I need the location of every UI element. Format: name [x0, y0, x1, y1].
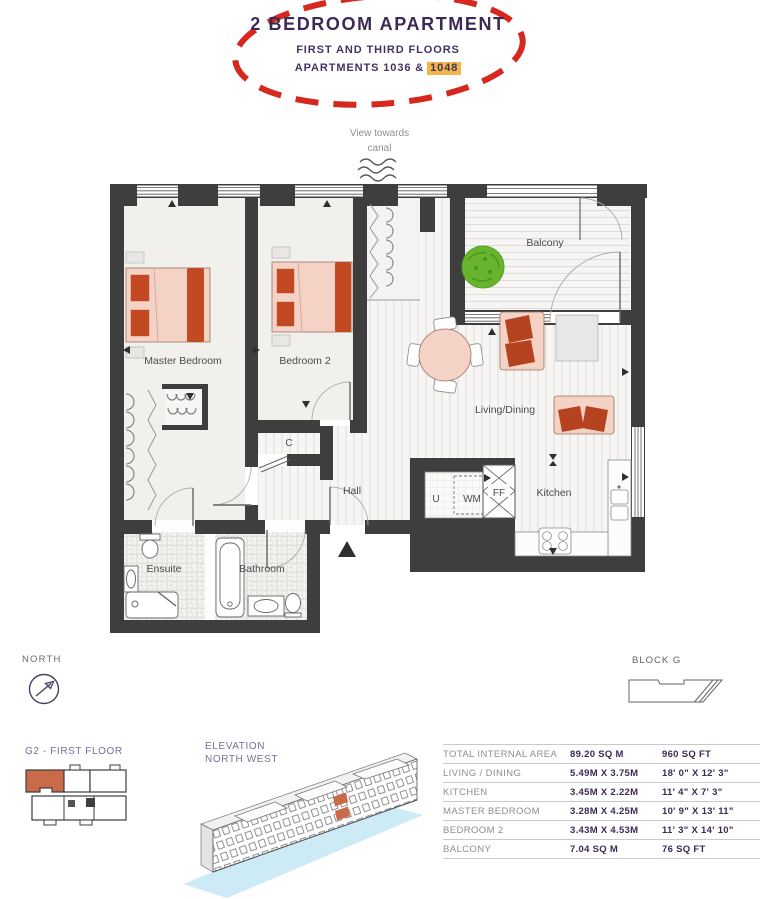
view-note-line2: canal [317, 141, 442, 156]
kitchen-sink [611, 485, 628, 520]
washing-machine-label: WM [463, 494, 481, 505]
bathroom-label: Bathroom [239, 563, 285, 575]
kitchen-label: Kitchen [536, 487, 571, 499]
block-g-label: BLOCK G [632, 655, 681, 666]
key-plan-diagram [24, 762, 136, 836]
row-imperial: 18' 0" X 12' 3" [662, 768, 760, 779]
table-row: BEDROOM 2 3.43M X 4.53M 11' 3" X 14' 10" [443, 820, 760, 839]
fridge-freezer-label: FF [493, 488, 505, 499]
ensuite-shower [126, 592, 178, 618]
entrance-arrow [338, 541, 356, 557]
sofa [500, 312, 544, 370]
row-label: TOTAL INTERNAL AREA [443, 749, 570, 760]
north-label: NORTH [22, 654, 62, 665]
table-row: LIVING / DINING 5.49M X 3.75M 18' 0" X 1… [443, 763, 760, 782]
floors-subtitle: FIRST AND THIRD FLOORS [222, 44, 534, 56]
elevation-illustration [183, 750, 445, 898]
page-title: 2 BEDROOM APARTMENT [222, 14, 534, 35]
row-metric: 5.49M X 3.75M [570, 768, 662, 779]
row-imperial: 10' 9" X 13' 11" [662, 806, 760, 817]
table-row: KITCHEN 3.45M X 2.22M 11' 4" X 7' 3" [443, 782, 760, 801]
table-row: BALCONY 7.04 SQ M 76 SQ FT [443, 839, 760, 859]
balcony-label: Balcony [526, 237, 564, 249]
living-dining-label: Living/Dining [475, 404, 535, 416]
highlighted-unit [26, 770, 64, 792]
row-imperial: 11' 4" X 7' 3" [662, 787, 760, 798]
view-note-line1: View towards [317, 126, 442, 141]
row-metric: 89.20 SQ M [570, 749, 662, 760]
cupboard-label: C [285, 438, 292, 449]
row-label: MASTER BEDROOM [443, 806, 570, 817]
bedroom2-bed [272, 247, 352, 346]
header: 2 BEDROOM APARTMENT FIRST AND THIRD FLOO… [222, 14, 534, 74]
sofa-2 [554, 396, 614, 434]
ensuite-basin [124, 566, 138, 592]
view-towards-canal-note: View towards canal [317, 126, 442, 156]
row-imperial: 960 SQ FT [662, 749, 760, 760]
bathtub [216, 538, 244, 617]
apartments-text: APARTMENTS 1036 & [295, 62, 424, 74]
row-label: BALCONY [443, 844, 570, 855]
bathroom-toilet [285, 594, 301, 618]
table-row: MASTER BEDROOM 3.28M X 4.25M 10' 9" X 13… [443, 801, 760, 820]
floor-plan: Master Bedroom Bedroom 2 Balcony Living/… [102, 172, 662, 642]
row-label: KITCHEN [443, 787, 570, 798]
table-row: TOTAL INTERNAL AREA 89.20 SQ M 960 SQ FT [443, 744, 760, 763]
row-label: BEDROOM 2 [443, 825, 570, 836]
block-g-icon [628, 670, 744, 706]
row-metric: 3.28M X 4.25M [570, 806, 662, 817]
dimensions-table: TOTAL INTERNAL AREA 89.20 SQ M 960 SQ FT… [443, 744, 760, 859]
row-imperial: 76 SQ FT [662, 844, 760, 855]
key-plan-title: G2 - FIRST FLOOR [25, 746, 123, 757]
ensuite-label: Ensuite [146, 563, 181, 575]
hall-label: Hall [343, 485, 361, 497]
north-compass-icon [24, 668, 66, 710]
row-metric: 3.45M X 2.22M [570, 787, 662, 798]
bedroom2-label: Bedroom 2 [279, 355, 331, 367]
master-bedroom-label: Master Bedroom [144, 355, 222, 367]
balcony-plant [462, 246, 504, 288]
row-imperial: 11' 3" X 14' 10" [662, 825, 760, 836]
row-metric: 7.04 SQ M [570, 844, 662, 855]
utility-label: U [432, 494, 439, 505]
side-table [556, 315, 598, 361]
bathroom-basin [248, 596, 284, 616]
apartment-number-highlight: 1048 [427, 62, 461, 75]
apartments-subtitle: APARTMENTS 1036 &1048 [222, 62, 534, 74]
row-metric: 3.43M X 4.53M [570, 825, 662, 836]
row-label: LIVING / DINING [443, 768, 570, 779]
master-bed [126, 252, 210, 358]
